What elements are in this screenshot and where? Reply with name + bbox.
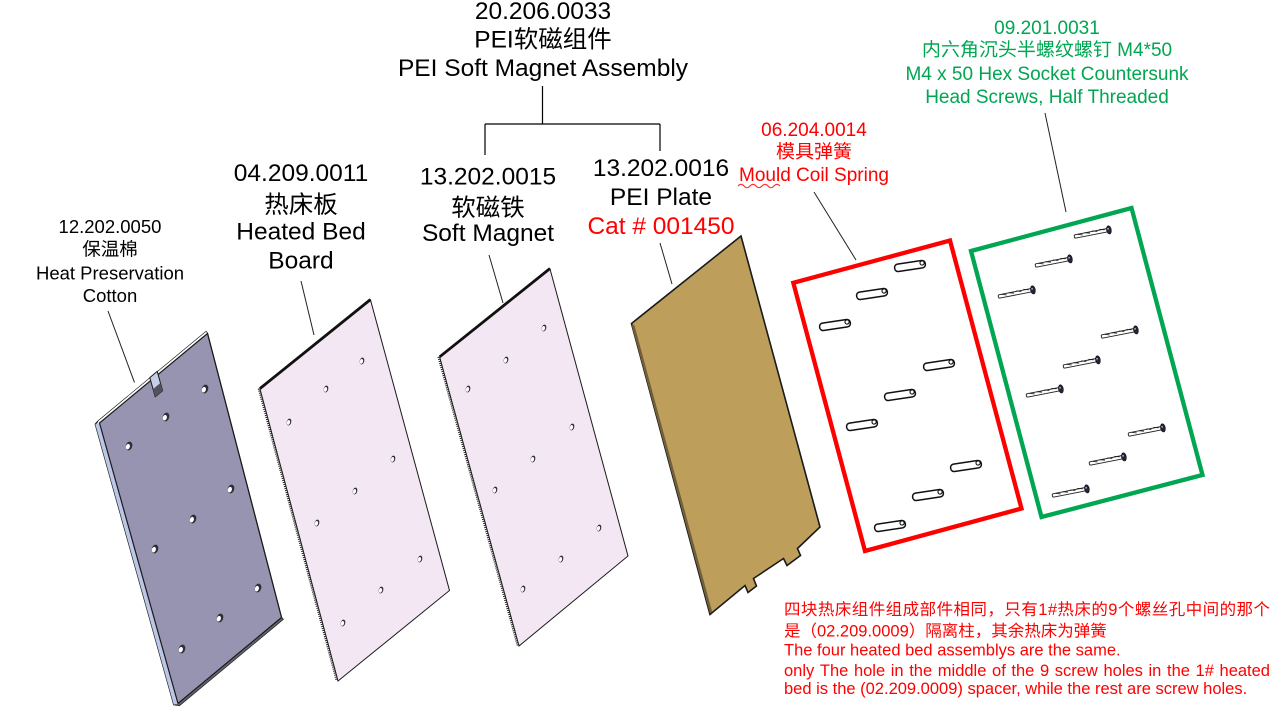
svg-text:09.201.0031: 09.201.0031	[994, 18, 1100, 39]
svg-text:middle: middle	[938, 662, 987, 680]
svg-text:9: 9	[1108, 601, 1117, 619]
svg-text:the: the	[1167, 662, 1190, 680]
svg-text:the: the	[909, 662, 932, 680]
svg-text:02.209.0009: 02.209.0009	[817, 623, 909, 641]
svg-text:Heat Preservation: Heat Preservation	[36, 263, 184, 284]
svg-text:06.204.0014: 06.204.0014	[761, 120, 867, 141]
svg-text:the: the	[1011, 662, 1034, 680]
svg-text:Cat # 001450: Cat # 001450	[587, 213, 734, 240]
svg-text:13.202.0015: 13.202.0015	[420, 164, 556, 191]
svg-text:screw: screw	[1055, 662, 1098, 680]
svg-text:PEI: PEI	[474, 27, 514, 54]
svg-text:PEI Plate: PEI Plate	[610, 184, 712, 211]
svg-text:12.202.0050: 12.202.0050	[59, 216, 162, 237]
svg-text:only: only	[784, 662, 815, 680]
svg-text:9: 9	[1040, 662, 1049, 680]
svg-text:1: 1	[1038, 601, 1047, 619]
svg-text:heated: heated	[1220, 662, 1270, 680]
svg-text:M4*50: M4*50	[1112, 40, 1172, 61]
svg-text:Board: Board	[268, 248, 333, 275]
svg-text:of: of	[992, 662, 1006, 680]
svg-text:The: The	[820, 662, 848, 680]
svg-text:M4 x 50 Hex Socket Countersunk: M4 x 50 Hex Socket Countersunk	[905, 64, 1189, 85]
svg-text:1#: 1#	[1196, 662, 1215, 680]
svg-text:04.209.0011: 04.209.0011	[234, 160, 368, 187]
svg-text:Heated Bed: Heated Bed	[236, 219, 365, 246]
svg-text:hole: hole	[854, 662, 885, 680]
svg-text:20.206.0033: 20.206.0033	[475, 0, 611, 25]
svg-text:bed is the (02.209.0009) space: bed is the (02.209.0009) spacer, while t…	[784, 680, 1247, 698]
svg-text:13.202.0016: 13.202.0016	[593, 155, 729, 182]
svg-text:Cotton: Cotton	[83, 285, 138, 306]
svg-text:Soft Magnet: Soft Magnet	[422, 220, 554, 247]
svg-text:PEI Soft Magnet Assembly: PEI Soft Magnet Assembly	[398, 55, 689, 82]
svg-text:Head Screws, Half Threaded: Head Screws, Half Threaded	[925, 87, 1169, 108]
svg-text:holes: holes	[1103, 662, 1142, 680]
svg-text:The four heated bed assemblys: The four heated bed assemblys are the sa…	[784, 642, 1121, 660]
svg-text:#: #	[1048, 601, 1058, 619]
svg-text:in: in	[891, 662, 904, 680]
svg-text:Mould Coil Spring: Mould Coil Spring	[739, 165, 889, 186]
svg-text:in: in	[1149, 662, 1162, 680]
